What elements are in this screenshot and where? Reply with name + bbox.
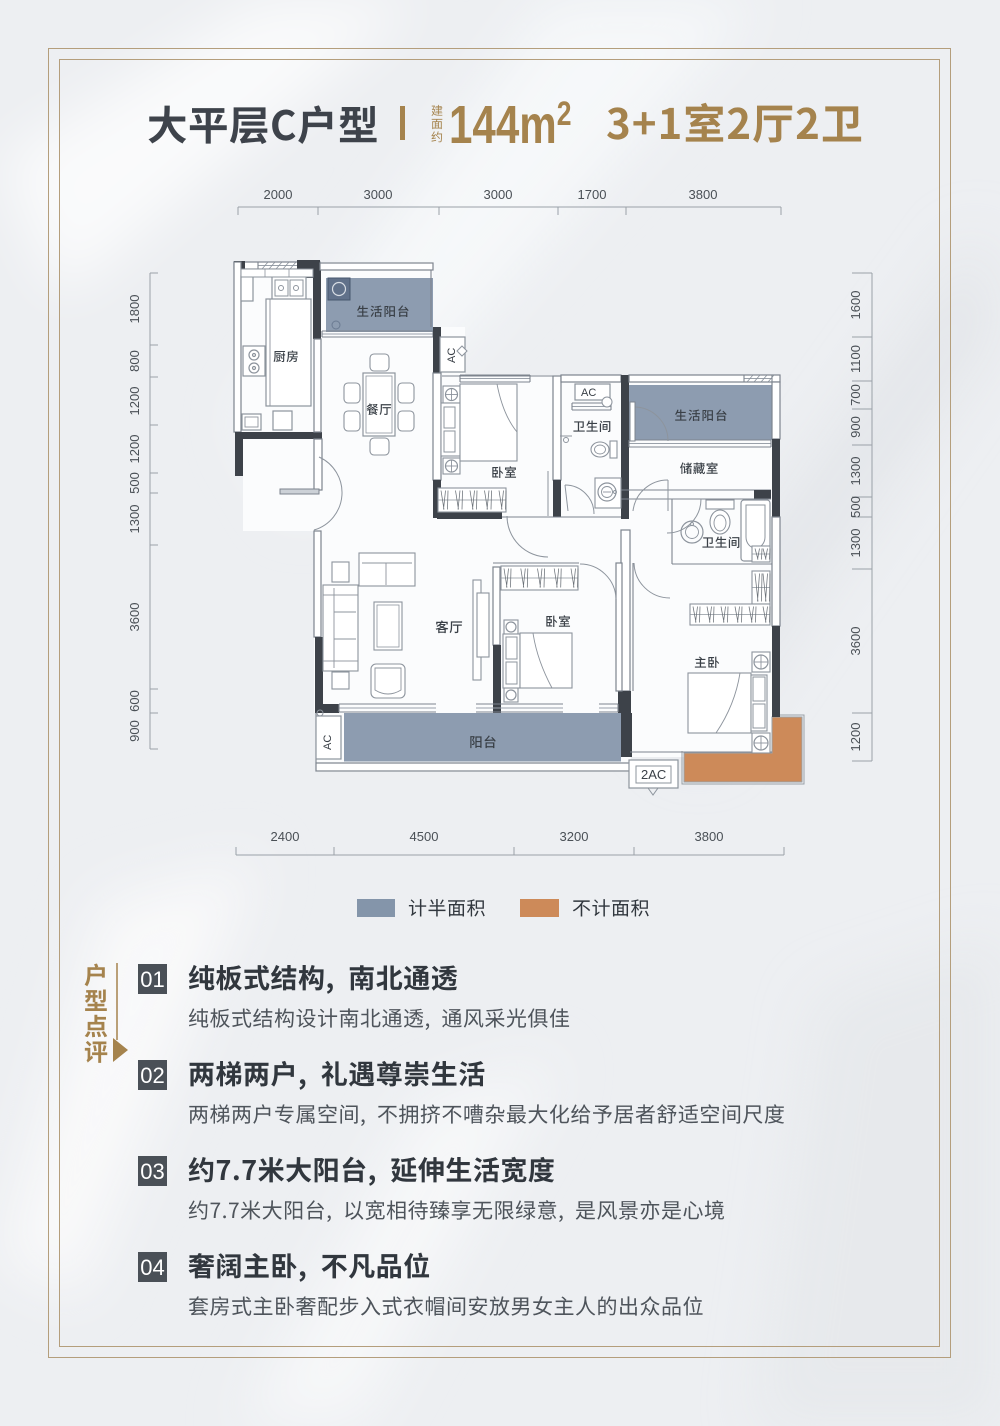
svg-text:04: 04 [140,1255,164,1280]
svg-text:3800: 3800 [689,187,718,202]
svg-text:3600: 3600 [848,627,863,656]
svg-text:3800: 3800 [695,829,724,844]
svg-text:1100: 1100 [848,345,863,373]
svg-text:2000: 2000 [264,187,293,202]
svg-text:3600: 3600 [127,603,142,632]
svg-text:1300: 1300 [127,505,142,534]
svg-text:1600: 1600 [848,291,863,320]
svg-text:AC: AC [581,387,596,399]
svg-text:900: 900 [127,720,142,742]
svg-text:1300: 1300 [848,457,863,486]
svg-text:01: 01 [140,967,164,992]
svg-text:700: 700 [848,384,863,406]
svg-text:600: 600 [127,690,142,712]
svg-text:2400: 2400 [271,829,300,844]
svg-text:3000: 3000 [484,187,513,202]
svg-text:03: 03 [140,1159,164,1184]
svg-text:4500: 4500 [410,829,439,844]
svg-text:1700: 1700 [578,187,607,202]
svg-text:1200: 1200 [848,723,863,752]
svg-text:500: 500 [848,496,863,518]
svg-text:900: 900 [848,416,863,438]
svg-text:1300: 1300 [848,529,863,558]
svg-text:AC: AC [322,735,334,750]
svg-text:3000: 3000 [364,187,393,202]
svg-text:1800: 1800 [127,295,142,324]
svg-text:3200: 3200 [560,829,589,844]
svg-text:500: 500 [127,472,142,494]
svg-text:144m2: 144m2 [449,95,571,155]
svg-text:800: 800 [127,350,142,372]
svg-text:2AC: 2AC [641,767,666,782]
svg-text:1200: 1200 [127,387,142,416]
svg-text:1200: 1200 [127,435,142,464]
svg-text:AC: AC [446,348,458,363]
svg-text:02: 02 [140,1063,164,1088]
